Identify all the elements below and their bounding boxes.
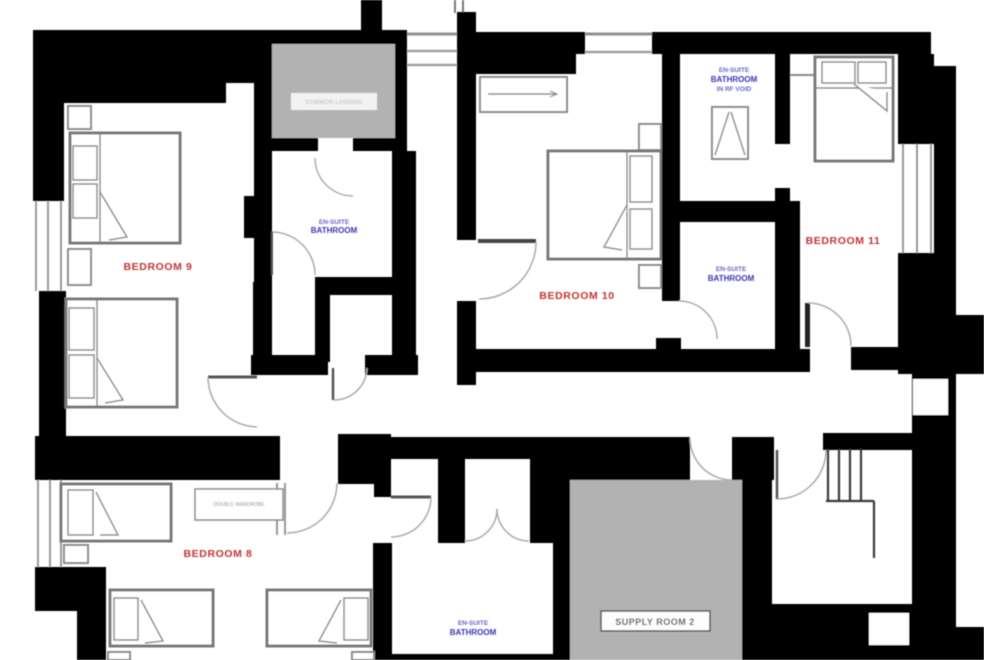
svg-text:BEDROOM 10: BEDROOM 10 (539, 290, 614, 302)
svg-text:IN RF VOID: IN RF VOID (717, 86, 752, 93)
svg-text:EN-SUITE: EN-SUITE (719, 67, 750, 74)
svg-text:BEDROOM 9: BEDROOM 9 (124, 261, 193, 273)
svg-text:BEDROOM 11: BEDROOM 11 (806, 235, 881, 247)
svg-text:BATHROOM: BATHROOM (708, 274, 755, 283)
svg-text:EN-SUITE: EN-SUITE (319, 219, 350, 226)
svg-text:DOUBLE WARDROBE: DOUBLE WARDROBE (213, 502, 265, 508)
svg-text:BEDROOM 8: BEDROOM 8 (184, 548, 253, 560)
svg-text:EN-SUITE: EN-SUITE (716, 266, 747, 273)
svg-text:BATHROOM: BATHROOM (711, 75, 758, 84)
svg-text:SUPPLY ROOM 2: SUPPLY ROOM 2 (615, 617, 695, 627)
svg-text:BATHROOM: BATHROOM (311, 226, 358, 235)
svg-text:BATHROOM: BATHROOM (450, 628, 497, 637)
svg-text:COMMON LANDING: COMMON LANDING (306, 100, 363, 106)
svg-text:EN-SUITE: EN-SUITE (458, 620, 489, 627)
